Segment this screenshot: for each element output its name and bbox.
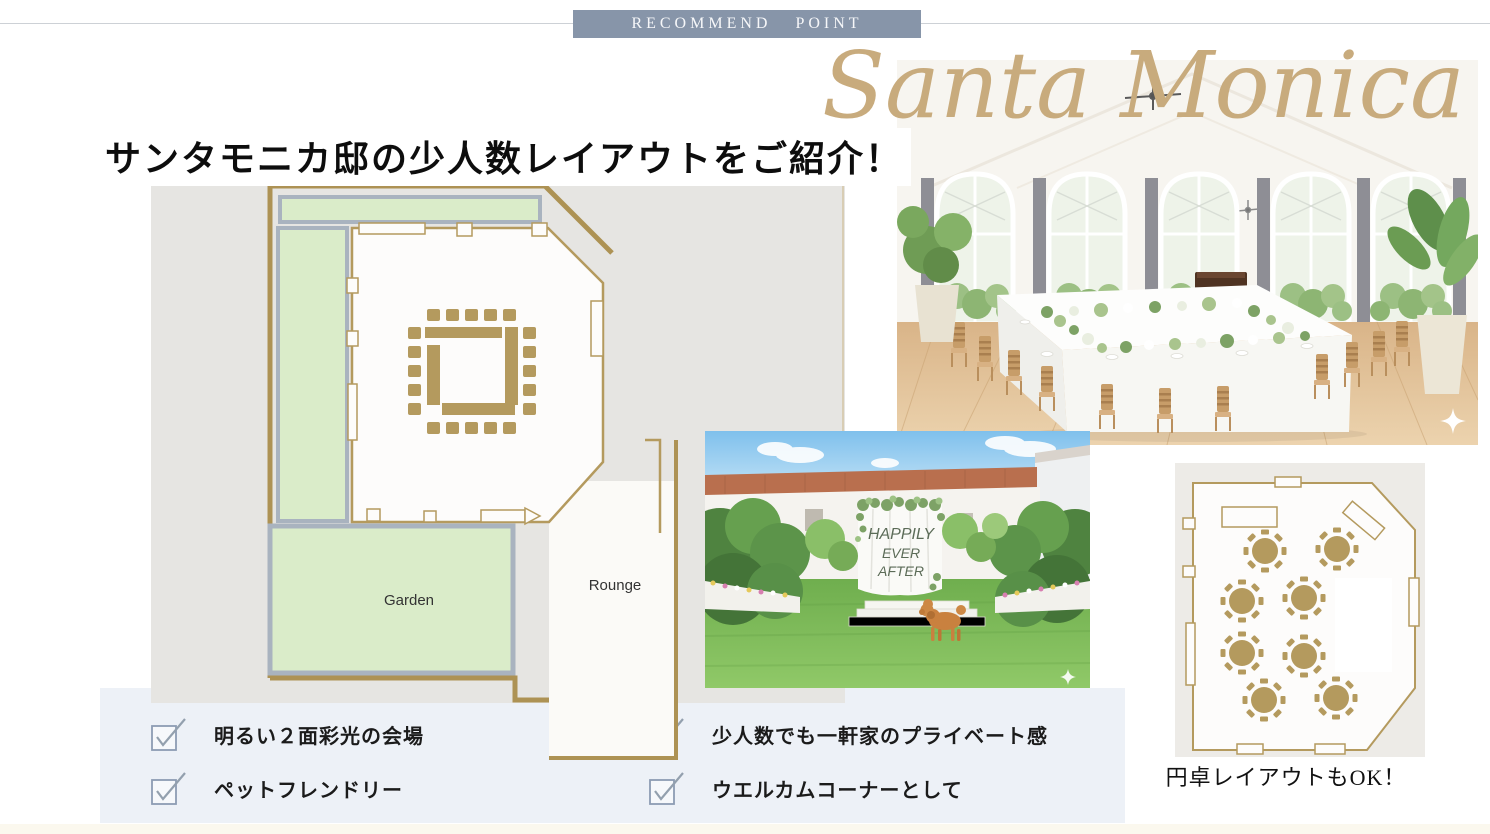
indoor-photo-canvas (897, 60, 1478, 445)
checklist-item: ペットフレンドリー (150, 768, 403, 808)
page-title: サンタモニカ邸の少人数レイアウトをご紹介！ (103, 128, 911, 186)
main-hall (352, 228, 603, 522)
checklist-item: ウエルカムコーナーとして (648, 768, 963, 808)
banner-label: RECOMMEND POINT (631, 15, 862, 33)
page: RECOMMEND POINT サンタモニカ邸の少人数レイアウトをご紹介！ (0, 0, 1490, 834)
round-layout-caption: 円卓レイアウトもOK！ (1158, 760, 1414, 792)
head-table (1222, 507, 1277, 527)
garden-photo-canvas: HAPPILY EVER AFTER (705, 431, 1090, 688)
garden-label: Garden (384, 592, 434, 609)
happily-ever-after-backdrop: HAPPILY EVER AFTER (855, 496, 945, 596)
checkbox-icon (648, 770, 686, 806)
backdrop-text-line3: AFTER (877, 563, 924, 579)
backdrop-text-line2: EVER (882, 545, 920, 561)
round-table-floor-plan (1175, 463, 1425, 759)
checklist-label: ペットフレンドリー (214, 774, 403, 803)
checkbox-icon (150, 770, 188, 806)
green-strip-top (280, 197, 540, 222)
lounge-area (549, 481, 676, 758)
recommend-point-banner: RECOMMEND POINT (573, 10, 921, 38)
checklist-label: ウエルカムコーナーとして (712, 774, 963, 803)
bottom-strip (0, 824, 1490, 834)
white-steps (849, 601, 985, 626)
backdrop-text-line1: HAPPILY (868, 526, 935, 543)
green-strip-left (278, 228, 347, 521)
garden-photo: HAPPILY EVER AFTER (705, 431, 1090, 688)
lounge-label: Rounge (589, 577, 642, 594)
indoor-venue-photo (897, 60, 1478, 445)
